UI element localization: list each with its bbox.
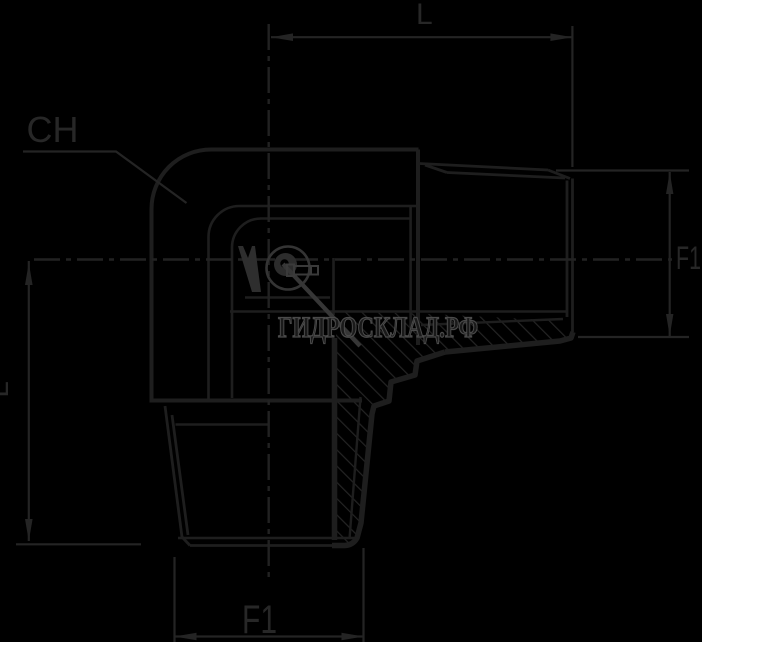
svg-text:ГИДРОСКЛАД.РФ: ГИДРОСКЛАД.РФ [278,311,478,344]
svg-text:L: L [416,0,433,31]
svg-text:L: L [0,381,15,398]
svg-text:CH: CH [27,109,79,150]
svg-text:F1: F1 [676,240,701,276]
svg-text:F1: F1 [242,598,277,642]
